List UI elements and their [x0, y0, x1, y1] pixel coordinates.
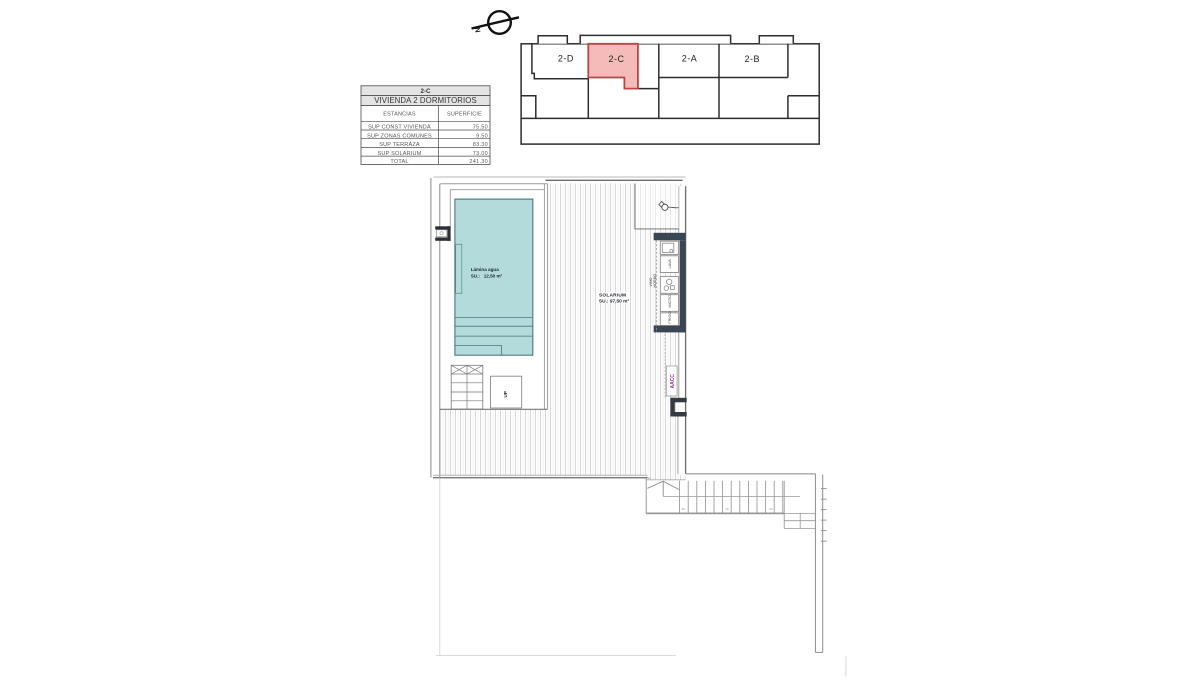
- svg-text:SUP TERRAZA: SUP TERRAZA: [379, 142, 420, 148]
- svg-text:SUPERFICIE: SUPERFICIE: [447, 112, 482, 118]
- svg-text:HORNO: HORNO: [653, 274, 657, 288]
- svg-text:SUP CONST VIVIENDA: SUP CONST VIVIENDA: [368, 125, 431, 131]
- svg-text:2-D: 2-D: [558, 54, 574, 64]
- svg-text:75.50: 75.50: [473, 125, 488, 131]
- svg-text:SUP SOLARIUM: SUP SOLARIUM: [378, 151, 422, 157]
- svg-text:UP: UP: [503, 391, 508, 397]
- svg-text:2-C: 2-C: [608, 54, 624, 64]
- svg-text:SUP ZONAS COMUNES: SUP ZONAS COMUNES: [367, 133, 432, 139]
- svg-text:SU.: 12,50 m²: SU.: 12,50 m²: [471, 273, 503, 278]
- svg-text:73.00: 73.00: [473, 151, 488, 157]
- svg-text:MICRO: MICRO: [667, 295, 672, 308]
- svg-text:2-A: 2-A: [682, 54, 698, 64]
- svg-text:SOLARIUM: SOLARIUM: [599, 293, 626, 299]
- svg-text:Lámina agua: Lámina agua: [471, 267, 500, 272]
- svg-text:SU.: 97,50 m²: SU.: 97,50 m²: [599, 298, 630, 304]
- svg-text:ESTANCIAS: ESTANCIAS: [383, 112, 416, 118]
- svg-text:16: 16: [681, 507, 685, 511]
- svg-text:04: 04: [769, 507, 773, 511]
- svg-text:VIVIENDA 2 DORMITORIOS: VIVIENDA 2 DORMITORIOS: [374, 96, 477, 105]
- svg-text:83.30: 83.30: [473, 142, 488, 148]
- svg-text:10: 10: [725, 507, 729, 511]
- svg-text:AACC: AACC: [670, 374, 676, 389]
- svg-text:2-C: 2-C: [421, 88, 432, 95]
- svg-text:2-B: 2-B: [744, 54, 760, 64]
- svg-text:TOTAL: TOTAL: [390, 159, 408, 165]
- svg-text:241.30: 241.30: [469, 159, 488, 165]
- svg-text:FRIGO: FRIGO: [667, 311, 672, 323]
- svg-text:9.50: 9.50: [476, 133, 488, 139]
- svg-text:LAVA: LAVA: [667, 259, 672, 269]
